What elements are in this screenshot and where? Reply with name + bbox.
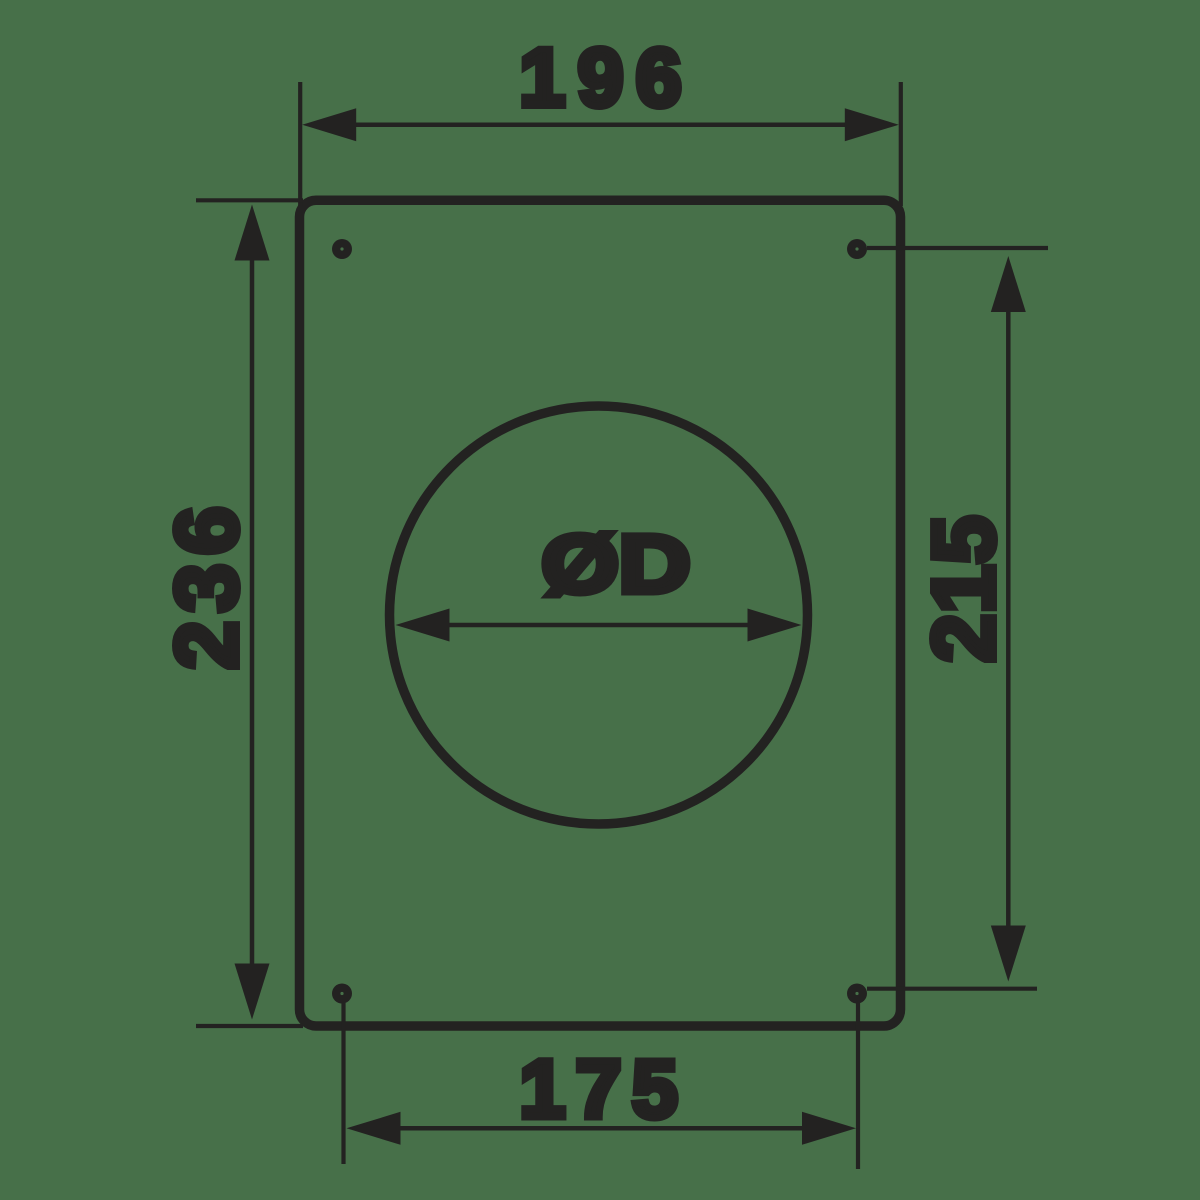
svg-text:175: 175 <box>520 1044 678 1135</box>
svg-text:236: 236 <box>159 507 256 670</box>
svg-text:215: 215 <box>916 516 1013 663</box>
svg-text:196: 196 <box>520 32 682 123</box>
svg-text:ØD: ØD <box>542 519 691 610</box>
